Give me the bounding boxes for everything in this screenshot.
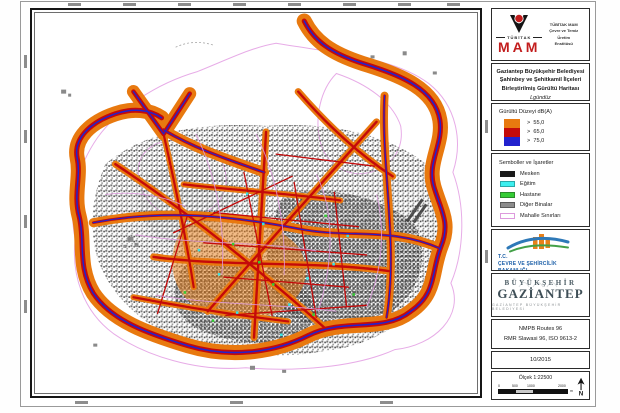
methods-box: NMPB Routes 96 RMR Slawasi 96, ISO 9613-… (491, 319, 590, 349)
map-title-box: Gaziantep Büyükşehir Belediyesi Şahinbey… (491, 63, 590, 101)
noise-label-65: > 65,0 (527, 128, 544, 137)
castle-watermark-icon (513, 276, 569, 288)
north-letter: N (579, 391, 584, 398)
map-title-line: Şahinbey ve Şehitkamil İlçeleri (494, 76, 587, 84)
legend-swatch (500, 181, 515, 187)
date-box: 10/2015 (491, 351, 590, 369)
dirt-track (176, 42, 214, 47)
coordinate-label (485, 250, 488, 263)
scale-tick: 0 (498, 384, 500, 388)
map-frame (30, 8, 482, 398)
legend-label: Hastane (520, 192, 541, 198)
noise-legend-box: Gürültü Düzeyi dB(A) > 55,0 > 65,0 > 75,… (491, 103, 590, 151)
ministry-line: ÇEVRE VE ŞEHİRCİLİK (498, 261, 557, 268)
institute-text: TÜBİTAK MAM Çevre ve Temiz Üretim Enstit… (542, 22, 585, 48)
map-inner-frame (34, 12, 478, 394)
north-arrow-icon: N (576, 375, 586, 399)
tubitak-logo-box: TÜBİTAK MAM TÜBİTAK MAM Çevre ve Temiz Ü… (491, 8, 590, 61)
legend-item-mesken: Mesken (500, 171, 589, 177)
gaziantep-logo-box: BÜYÜKŞEHİR GAZİANTEP GAZİANTEP BÜYÜKŞEHİ… (491, 273, 590, 317)
coordinate-label (447, 3, 460, 6)
noise-color-bar (504, 119, 520, 146)
coordinate-label (123, 3, 136, 6)
map-date: 10/2015 (492, 352, 589, 368)
legend-swatch (500, 171, 515, 177)
coordinate-label (75, 401, 88, 404)
map-title-line: Birleştirilmiş Gürültü Haritası (494, 85, 587, 93)
coordinate-label (380, 401, 393, 404)
noise-swatch-55 (504, 119, 520, 128)
ministry-buildings-swoosh-icon (498, 232, 578, 254)
coordinate-label (343, 3, 356, 6)
map-title-subtitle: Lgündüz (494, 95, 587, 101)
method-line: NMPB Routes 96 (492, 325, 589, 335)
coordinate-label (485, 120, 488, 133)
legend-swatch (500, 192, 515, 198)
legend-item-egitim: Eğitim (500, 181, 589, 187)
scale-bar-segment (533, 390, 567, 393)
coordinate-label (24, 55, 27, 68)
tubitak-emblem-icon (507, 13, 531, 35)
legend-item-hastane: Hastane (500, 192, 589, 198)
legend-swatch (500, 202, 515, 208)
legend-item-mahalle-sinirlari: Mahalle Sınırları (500, 213, 589, 219)
coordinate-label (24, 215, 27, 228)
coordinate-label (230, 401, 243, 404)
legend-label: Mahalle Sınırları (520, 213, 561, 219)
noise-label-75: > 75,0 (527, 137, 544, 146)
coordinate-label (398, 3, 411, 6)
coordinate-label (288, 3, 301, 6)
scale-label: Ölçek 1:22500 (498, 375, 573, 381)
ministry-logo-box: T.C. ÇEVRE VE ŞEHİRCİLİK BAKANLIĞI (491, 229, 590, 271)
ministry-line: T.C. (498, 254, 557, 261)
legend-label: Diğer Binalar (520, 202, 552, 208)
coordinate-label (24, 300, 27, 313)
scale-ticks: 0 500 1000 2000 (498, 384, 566, 389)
method-line: RMR Slawasi 96, ISO 9613-2 (492, 335, 589, 345)
symbols-legend-title: Semboller ve İşaretler (499, 160, 589, 166)
scale-bar-segment (516, 390, 533, 393)
map-title-line: Gaziantep Büyükşehir Belediyesi (494, 68, 587, 76)
ministry-line: BAKANLIĞI (498, 268, 557, 272)
coordinate-label (178, 3, 191, 6)
coordinate-label (233, 3, 246, 6)
scale-tick: 1000 (527, 384, 535, 388)
scale-unit: m (570, 389, 573, 393)
scale-tick: 500 (512, 384, 518, 388)
scale-bar-segment (499, 390, 516, 393)
noise-legend-title: Gürültü Düzeyi dB(A) (499, 109, 589, 115)
institute-line: Çevre ve Temiz Üretim (542, 28, 585, 41)
city-logo-line2: GAZİANTEP (497, 287, 583, 301)
legend-item-diger-binalar: Diğer Binalar (500, 202, 589, 208)
institute-line: Enstitüsü (542, 41, 585, 47)
ministry-text: T.C. ÇEVRE VE ŞEHİRCİLİK BAKANLIĞI (498, 254, 557, 271)
coordinate-label (68, 3, 81, 6)
mam-wordmark: MAM (498, 40, 540, 55)
legend-swatch (500, 213, 515, 219)
noise-swatch-65 (504, 128, 520, 137)
noise-label-55: > 55,0 (527, 119, 544, 128)
city-logo-line3: GAZİANTEP BÜYÜKŞEHİR BELEDİYESİ (492, 303, 589, 311)
symbols-legend-box: Semboller ve İşaretler Mesken Eğitim Has… (491, 153, 590, 227)
scale-tick: 2000 (558, 384, 566, 388)
noise-map-canvas (35, 13, 477, 393)
legend-label: Mesken (520, 171, 540, 177)
map-sheet: TÜBİTAK MAM TÜBİTAK MAM Çevre ve Temiz Ü… (0, 0, 620, 413)
coordinate-label (24, 130, 27, 143)
legend-label: Eğitim (520, 181, 536, 187)
scale-bar (498, 389, 568, 394)
noise-swatch-75 (504, 137, 520, 146)
scale-box: Ölçek 1:22500 0 500 1000 2000 m (491, 371, 590, 400)
